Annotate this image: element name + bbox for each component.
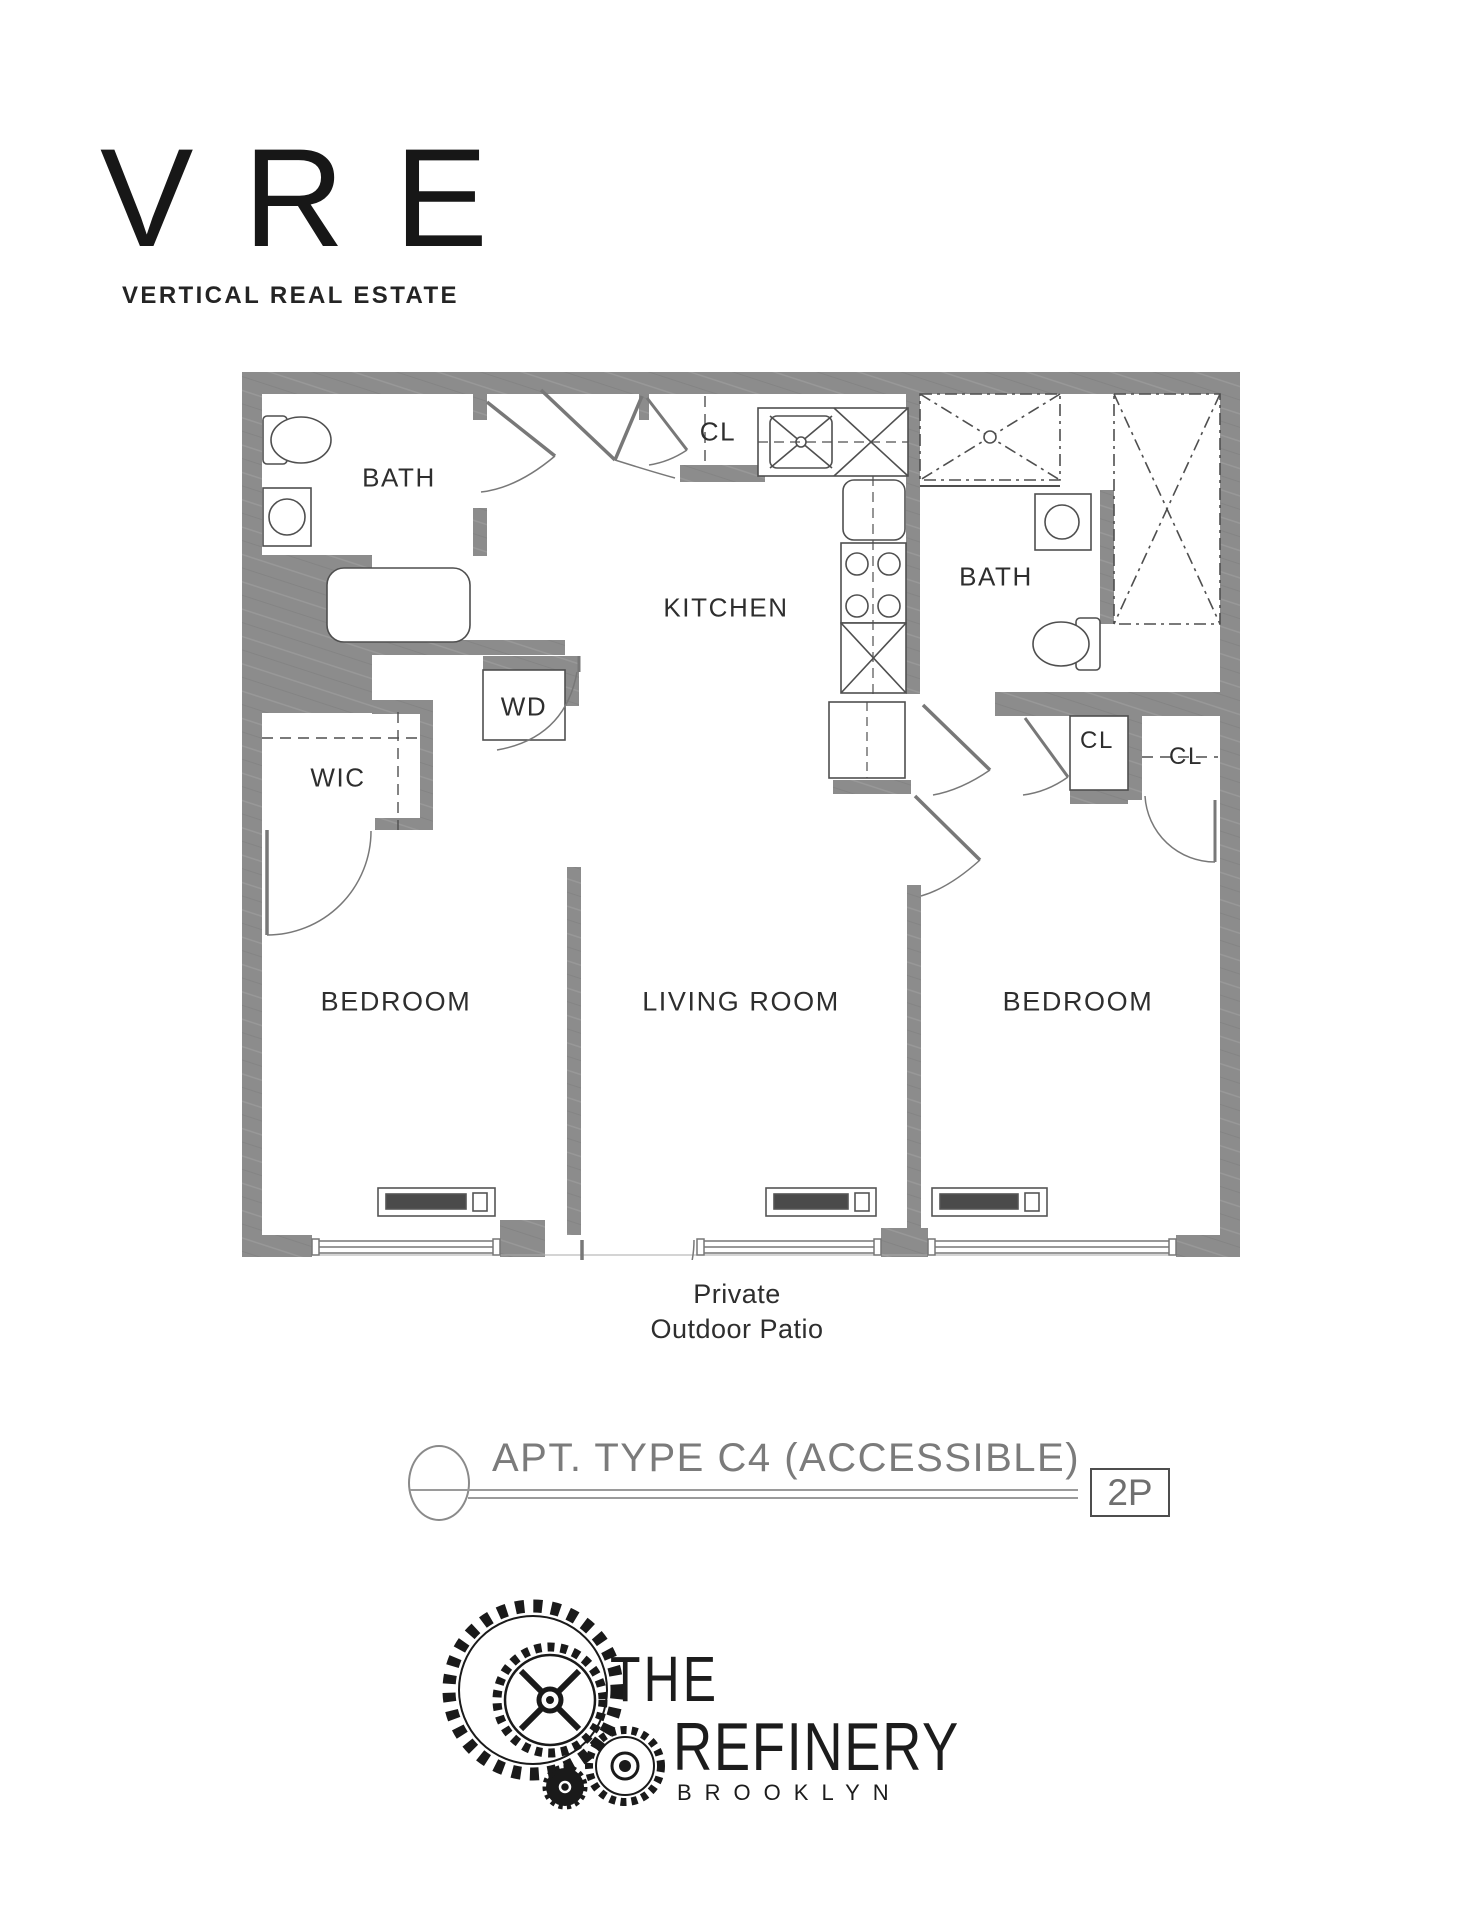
- door-closet-right-2: [1145, 796, 1215, 862]
- refinery-logo-brooklyn: BROOKLYN: [677, 1780, 902, 1806]
- door-bath-right: [923, 705, 990, 795]
- kitchen-counter: [758, 408, 908, 476]
- linen-closet-icon: [1114, 394, 1220, 624]
- heater-living-room: [766, 1188, 876, 1216]
- door-bath-left: [481, 402, 555, 492]
- door-closet-right-1: [1023, 718, 1068, 795]
- room-label-wic: WIC: [310, 763, 365, 794]
- room-label-kitchen: KITCHEN: [663, 593, 788, 624]
- patio-label-line1: Private: [650, 1277, 823, 1312]
- door-patio: [582, 1240, 694, 1260]
- window-living-room: [697, 1239, 881, 1255]
- refinery-logo-name: REFINERY: [673, 1708, 960, 1786]
- room-label-bath-left: BATH: [362, 463, 436, 494]
- heater-units: [378, 1188, 1047, 1216]
- apartment-type-title: APT. TYPE C4 (ACCESSIBLE): [492, 1436, 1080, 1481]
- bathtub-icon: [327, 568, 470, 642]
- floor-plan-drawing: [235, 360, 1245, 1260]
- room-label-washer-dryer: WD: [501, 692, 548, 723]
- windows: [312, 1239, 1176, 1255]
- title-rule-bottom: [468, 1497, 1078, 1499]
- sink-icon: [263, 488, 311, 546]
- gear-spoked-icon: [497, 1647, 603, 1753]
- patio-label: Private Outdoor Patio: [650, 1277, 823, 1347]
- room-label-bedroom-right: BEDROOM: [1003, 987, 1154, 1018]
- toilet-icon: [263, 416, 331, 464]
- refrigerator-icon: [843, 480, 905, 540]
- title-datum-circle: [408, 1445, 470, 1521]
- refinery-logo-the: THE: [610, 1642, 719, 1716]
- door-wic: [267, 830, 371, 935]
- room-label-closet-right-1: CL: [1080, 727, 1114, 755]
- window-bedroom-left: [312, 1239, 500, 1255]
- gear-small-icon: [546, 1768, 584, 1806]
- room-label-bath-right: BATH: [959, 562, 1033, 593]
- sink-icon: [1035, 494, 1091, 550]
- toilet-icon: [1033, 618, 1100, 670]
- room-label-bedroom-left: BEDROOM: [321, 987, 472, 1018]
- room-label-closet-right-2: CL: [1169, 743, 1203, 771]
- room-label-living-room: LIVING ROOM: [642, 987, 840, 1018]
- door-closet-top: [647, 398, 687, 465]
- patio-label-line2: Outdoor Patio: [650, 1312, 823, 1347]
- window-bedroom-right: [928, 1239, 1176, 1255]
- door-bedroom-right: [915, 796, 980, 896]
- vre-tagline: VERTICAL REAL ESTATE: [122, 282, 459, 310]
- room-label-closet-top: CL: [700, 417, 736, 448]
- pantry-icon: [829, 702, 905, 778]
- shower-icon: [920, 394, 1060, 486]
- title-rule-top: [410, 1489, 1078, 1491]
- vre-logo: VRE: [100, 128, 538, 268]
- door-entry: [541, 390, 675, 478]
- heater-bedroom-left: [378, 1188, 495, 1216]
- occupancy-badge: 2P: [1090, 1468, 1170, 1517]
- floor-plan-sheet: VRE VERTICAL REAL ESTATE: [0, 0, 1483, 1919]
- gear-large-icon: [449, 1606, 617, 1774]
- heater-bedroom-right: [932, 1188, 1047, 1216]
